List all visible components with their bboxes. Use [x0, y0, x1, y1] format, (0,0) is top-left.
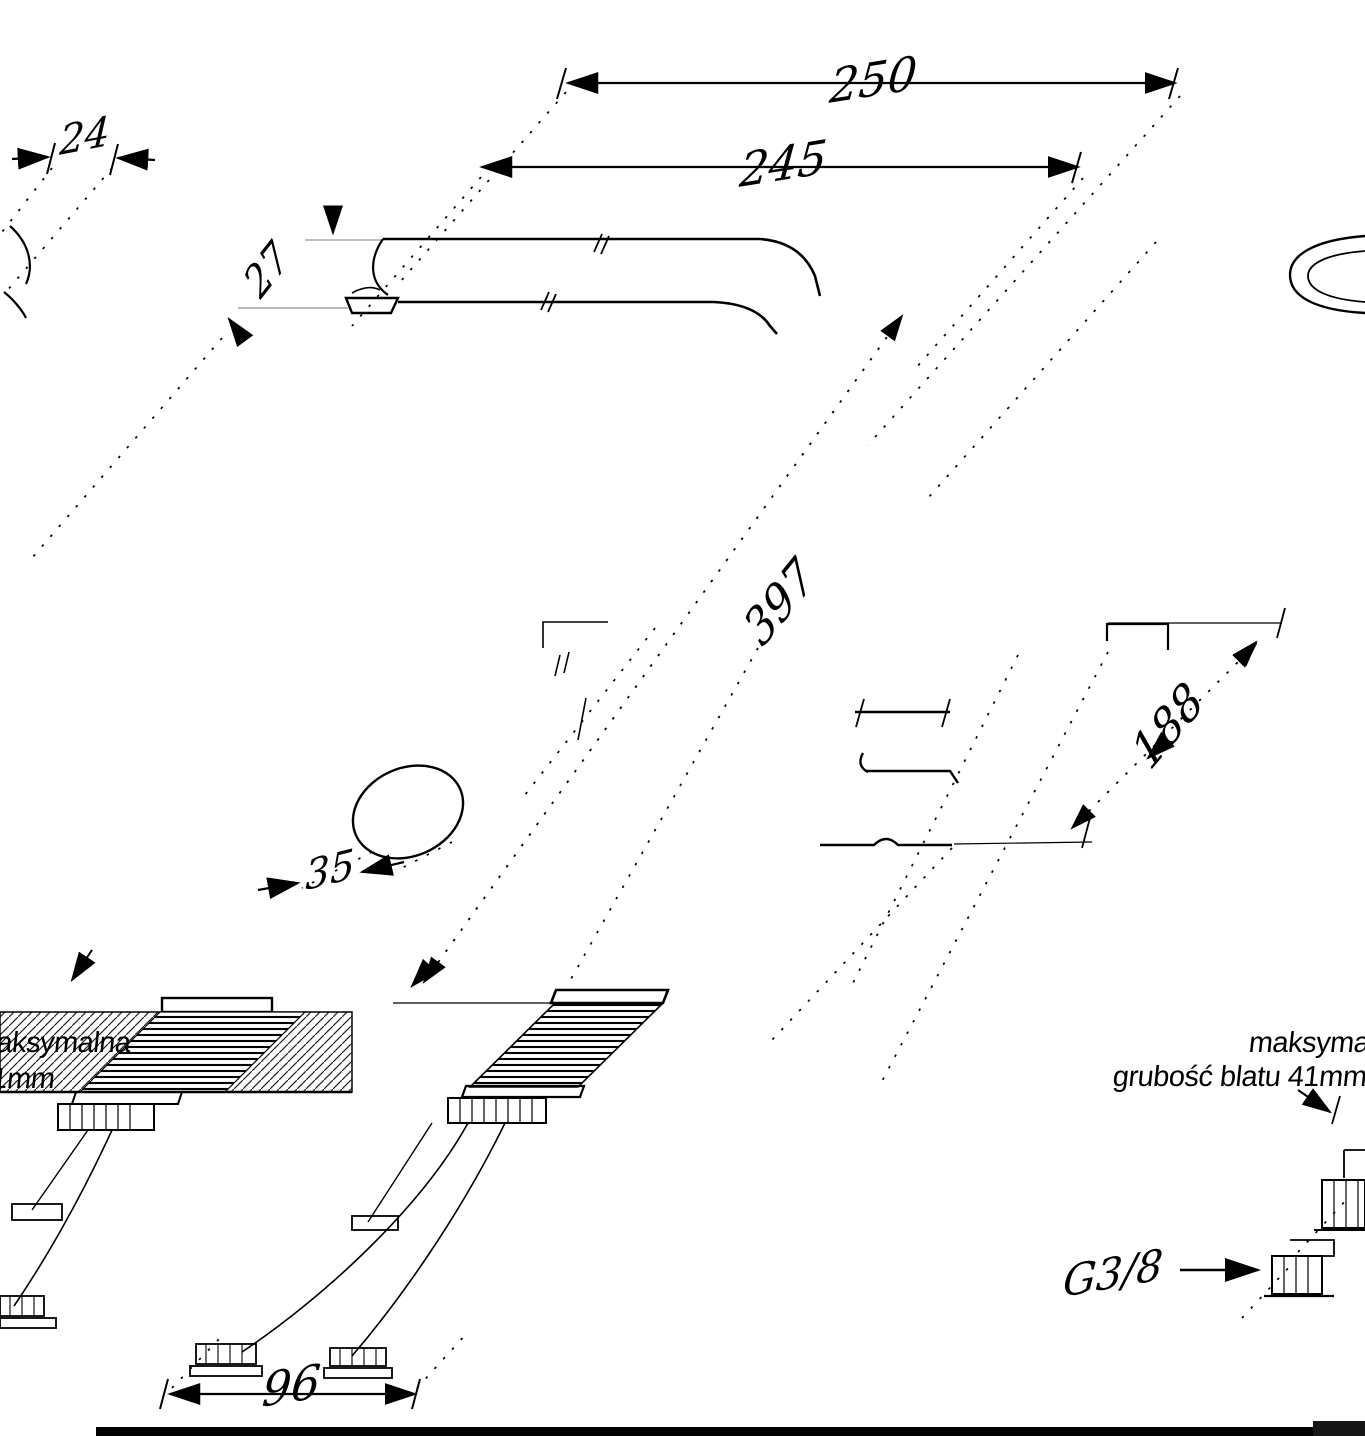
bottom-border-bar: [96, 1427, 1365, 1436]
note-right-line1: maksymalna: [1247, 1027, 1365, 1059]
spout-outline: [346, 234, 820, 334]
cut-fragment-left-edge: [4, 226, 30, 318]
dim-397-label: 397: [734, 547, 825, 657]
dim-397-line: [424, 316, 902, 982]
base-circle: [338, 749, 478, 876]
dim-96-label: 96: [260, 1355, 323, 1419]
dim-250-label: 250: [827, 47, 919, 115]
dim-27-label: 27: [235, 232, 299, 308]
dim-245-label: 245: [737, 131, 829, 199]
bottom-corner-block: [1313, 1421, 1365, 1436]
note-left-line2: grubość blatu 41mm: [0, 1063, 56, 1095]
cut-fragment-top-right: [1290, 236, 1365, 313]
small-up-arrows-right: [1240, 642, 1256, 660]
note-left-line1: maksymalna: [0, 1027, 134, 1059]
hose-thread-ends: [1180, 1150, 1365, 1296]
left-mounting-assembly: [0, 950, 352, 1328]
thread-size-label: G3/8: [1061, 1240, 1164, 1308]
dim-24-label: 24: [58, 107, 111, 166]
note-right-line2: grubość blatu 41mm: [1111, 1061, 1365, 1093]
dim-35-label: 35: [305, 839, 354, 900]
note-max-worktop-right: maksymalna grubość blatu 41mm: [1111, 1027, 1365, 1124]
tube-break-marks: [543, 622, 608, 740]
body-step-fragments: [820, 699, 1092, 845]
drawing-canvas: 250 245 24 27 3: [0, 0, 1365, 1436]
faucet-dimension-drawing: 250 245 24 27 3: [0, 0, 1365, 1436]
